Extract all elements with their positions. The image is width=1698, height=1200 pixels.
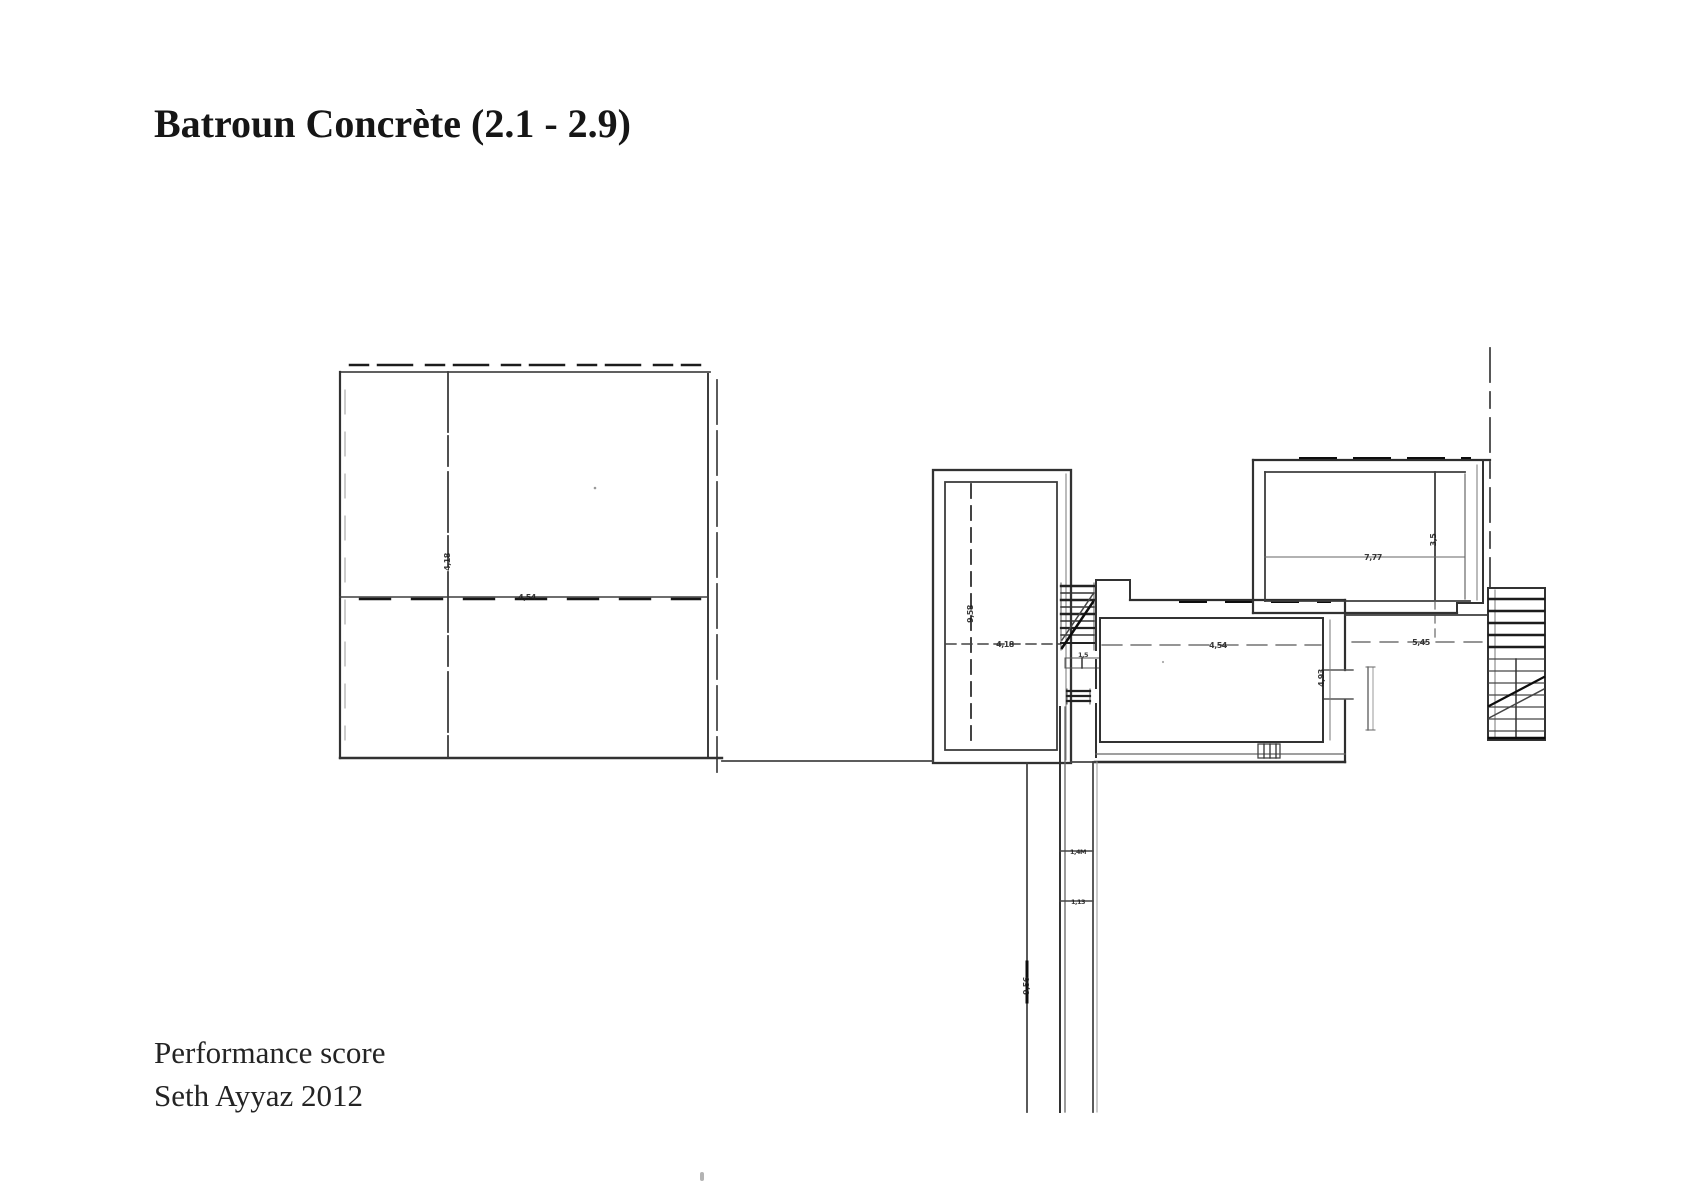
- dim-label-room-c-horizontal: 4,54: [1209, 641, 1228, 650]
- room-upper-right: [1253, 458, 1490, 640]
- right-corridor: [1345, 348, 1490, 730]
- credit-line-author-year: Seth Ayyaz 2012: [154, 1075, 386, 1118]
- credit-line-performance-score: Performance score: [154, 1032, 386, 1075]
- base-wall-lines: [722, 761, 1096, 762]
- room-tall-narrow: [933, 470, 1071, 763]
- floor-plan-drawing: 4,18 4,54 9,58 4,18 1,5 4,54 4,93 7,77 3…: [0, 0, 1698, 1200]
- score-page: Batroun Concrète (2.1 - 2.9): [0, 0, 1698, 1200]
- dim-label-room-a-vertical: 4,18: [443, 552, 452, 571]
- dim-label-corridor-tick-1: 1,4M: [1070, 848, 1086, 856]
- room-middle: [1095, 580, 1353, 762]
- staircase: [1488, 588, 1545, 740]
- dim-label-right-corridor: 5,45: [1412, 638, 1431, 647]
- dim-label-room-b-horizontal: 4,18: [996, 640, 1015, 649]
- dim-label-corridor-vertical: 9,56: [1022, 976, 1031, 995]
- room-large-studio: [340, 365, 722, 772]
- vertical-corridor: [1027, 707, 1097, 1112]
- scan-specks: [594, 487, 1164, 1181]
- dim-label-connector: 1,5: [1078, 651, 1089, 659]
- dim-label-room-d-horizontal: 7,77: [1364, 553, 1382, 562]
- stair-hatch-connector: [1061, 583, 1100, 704]
- dim-label-room-b-vertical: 9,58: [966, 604, 975, 623]
- credit-block: Performance score Seth Ayyaz 2012: [154, 1032, 386, 1118]
- dim-label-room-c-vertical: 4,93: [1317, 669, 1326, 687]
- dim-label-corridor-tick-2: 1,13: [1071, 898, 1085, 906]
- dim-label-room-d-vertical: 3,5: [1429, 533, 1438, 547]
- dim-label-room-a-horizontal: 4,54: [518, 593, 537, 602]
